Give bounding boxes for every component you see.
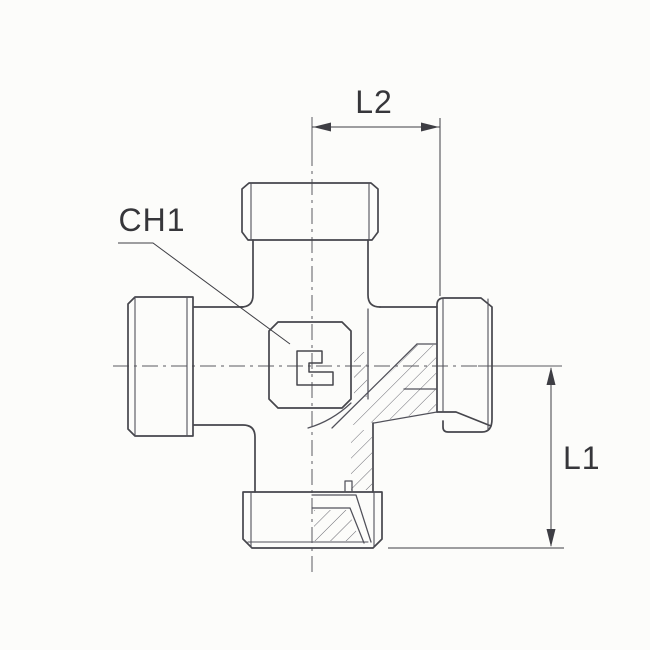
label-l2: L2 [355,84,393,120]
hatch-region [354,352,367,397]
hatch-region [351,430,372,490]
cross-fitting-technical-drawing: L2 CH1 L1 [0,0,650,650]
drawing-page: L2 CH1 L1 [0,0,650,650]
paper-background [0,0,650,650]
label-ch1: CH1 [118,202,185,238]
label-l1: L1 [563,440,601,476]
